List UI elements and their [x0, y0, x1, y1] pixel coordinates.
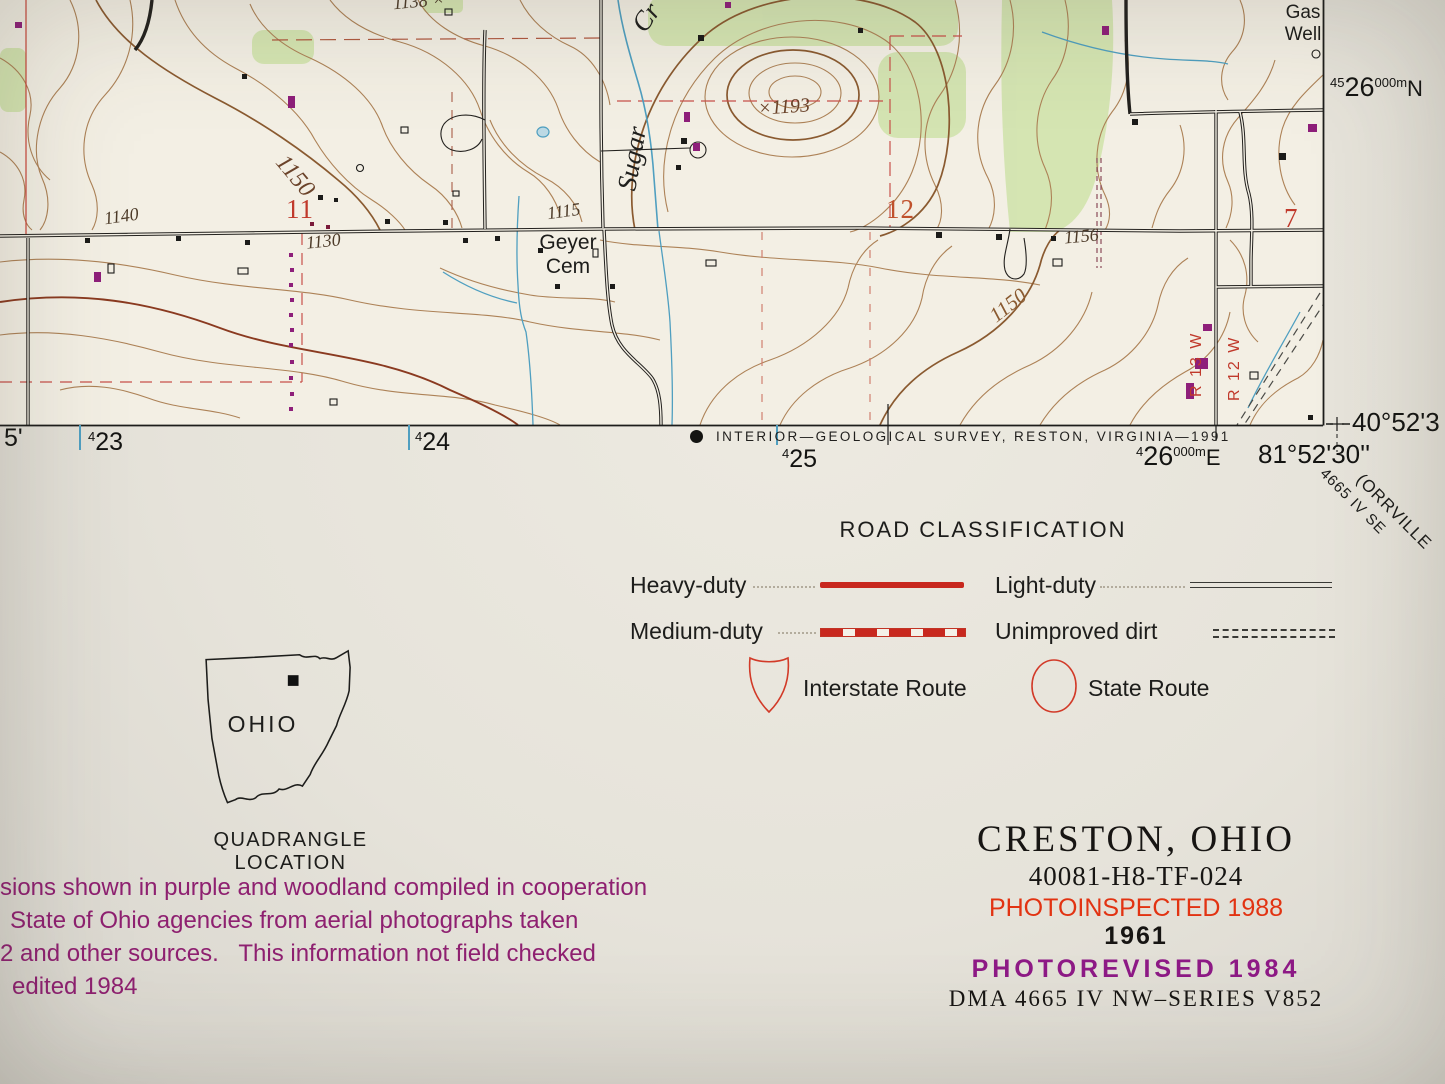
light-duty-road-symbol: [1190, 582, 1332, 588]
legend-label-interstate-route: Interstate Route: [803, 675, 967, 702]
medium-duty-road-symbol: [820, 628, 966, 637]
spot-elevation-1193: ×1193: [757, 95, 810, 119]
section-number-7: 7: [1284, 205, 1299, 232]
state-route-oval-icon: [1028, 657, 1082, 717]
spot-elevation-1156: 1156: [1063, 226, 1099, 247]
heavy-duty-road-symbol: [820, 582, 964, 588]
easting-label-423: 423: [88, 430, 123, 455]
revision-note-line2: State of Ohio agencies from aerial photo…: [10, 907, 578, 935]
revision-note-line1: sions shown in purple and woodland compi…: [0, 874, 647, 902]
easting-label-425: 425: [782, 447, 817, 472]
survey-dot: [690, 430, 703, 443]
easting-426-small: 000m: [1173, 444, 1206, 459]
quadrangle-marker: [288, 675, 299, 686]
northing-label-4526000mN: 4526000mN: [1330, 74, 1423, 101]
revision-note-line4: edited 1984: [12, 973, 137, 1001]
section-number-11: 11: [286, 196, 314, 223]
series-designation: DMA 4665 IV NW–SERIES V852: [886, 986, 1386, 1012]
state-name-label: OHIO: [208, 711, 318, 738]
map-paper: [0, 0, 1323, 425]
quad-title: CRESTON, OHIO: [886, 818, 1386, 861]
gas-well-label: Gas Well: [1272, 2, 1334, 46]
northing-small: 000m: [1375, 75, 1408, 90]
contour-label-1140: 1140: [103, 205, 140, 228]
photoinspected-note: PHOTOINSPECTED 1988: [886, 894, 1386, 923]
base-year: 1961: [886, 922, 1386, 951]
legend-leader-medium: [778, 632, 816, 634]
photorevised-note: PHOTOREVISED 1984: [886, 955, 1386, 984]
map-id: 40081-H8-TF-024: [886, 861, 1386, 892]
legend-leader-light: [1100, 586, 1185, 588]
legend-title: ROAD CLASSIFICATION: [828, 517, 1138, 543]
northing-axis: N: [1407, 76, 1423, 101]
interstate-shield-icon: [743, 650, 795, 720]
survey-credit-line: INTERIOR—GEOLOGICAL SURVEY, RESTON, VIRG…: [716, 429, 1231, 444]
easting-424-main: 24: [422, 428, 450, 456]
legend-leader-heavy: [753, 586, 815, 588]
quadrangle-location-caption: QUADRANGLE LOCATION: [168, 829, 413, 875]
adjoining-quad-label: (ORRVILLE 4665 IV SE: [1338, 470, 1436, 568]
easting-426-main: 26: [1143, 441, 1173, 471]
cemetery-label-line1: Geyer: [539, 231, 596, 254]
gas-well-line2: Well: [1285, 24, 1322, 45]
cemetery-label-geyer: Geyer Cem: [518, 231, 618, 279]
range-label-r13w: R 13 W: [1189, 335, 1205, 397]
legend-label-state-route: State Route: [1088, 675, 1209, 702]
topo-map-photo: 1150 1140 1130 1115 1156 ×1193 1138 × 11…: [0, 0, 1445, 1084]
easting-423-main: 23: [95, 428, 123, 456]
gas-well-line1: Gas: [1286, 2, 1321, 23]
legend-label-unimproved-dirt: Unimproved dirt: [995, 618, 1157, 645]
range-label-r12w: R 12 W: [1227, 339, 1243, 401]
contour-label-1115: 1115: [546, 200, 582, 222]
legend-label-heavy-duty: Heavy-duty: [630, 572, 746, 599]
easting-label-424: 424: [415, 430, 450, 455]
minute-label-left: 5': [4, 426, 23, 451]
corner-latitude: 40°52'3: [1352, 407, 1440, 438]
easting-426-axis: E: [1206, 445, 1221, 470]
cemetery-label-line2: Cem: [546, 255, 590, 278]
easting-425-main: 25: [789, 445, 817, 473]
corner-longitude: 81°52'30'': [1258, 439, 1370, 470]
unimproved-dirt-road-symbol: [1213, 629, 1335, 638]
section-number-12: 12: [886, 196, 915, 223]
easting-label-426000mE: 426000mE: [1136, 443, 1221, 470]
contour-label-1130: 1130: [305, 230, 341, 252]
northing-main: 26: [1344, 72, 1374, 102]
revision-note-line3: 2 and other sources. This information no…: [0, 940, 596, 968]
northing-prefix: 45: [1330, 75, 1344, 90]
legend-label-medium-duty: Medium-duty: [630, 618, 763, 645]
legend-label-light-duty: Light-duty: [995, 572, 1096, 599]
